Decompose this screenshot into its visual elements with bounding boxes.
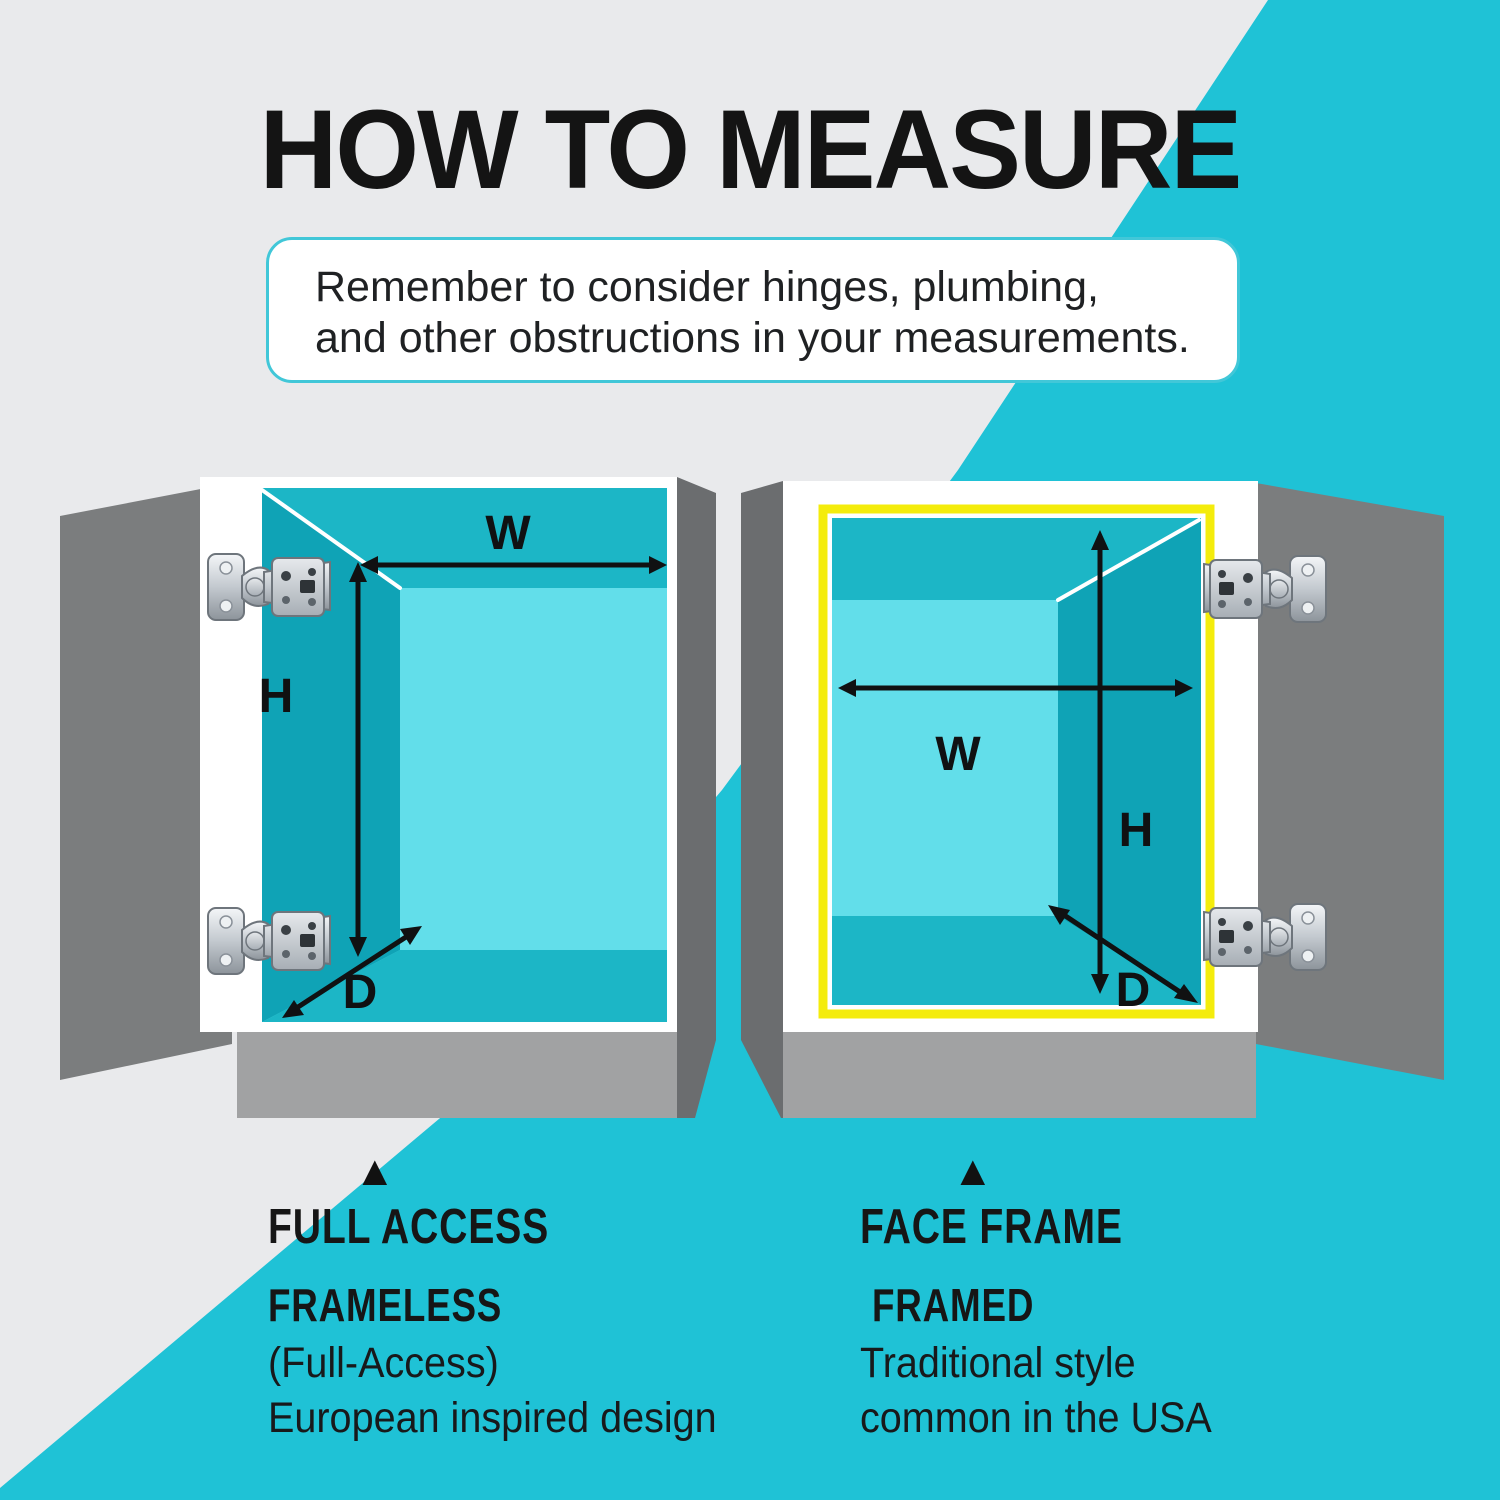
left-height-label: H — [259, 670, 294, 723]
right-caption-detail-1: Traditional style — [860, 1336, 1412, 1391]
note-text-line2: and other obstructions in your measureme… — [315, 313, 1237, 364]
right-caption-style-name: FRAMED — [872, 1280, 1342, 1330]
infographic-page: W H D — [0, 0, 1500, 1500]
left-caption-style-name: FRAMELESS — [268, 1280, 748, 1330]
left-caption-detail-2: European inspired design — [268, 1391, 820, 1446]
right-depth-label: D — [1116, 964, 1151, 1017]
right-cabinet: W H D — [741, 481, 1444, 1118]
right-cabinet-base — [783, 1032, 1256, 1118]
page-title: HOW TO MEASURE — [174, 94, 1326, 206]
left-depth-label: D — [343, 966, 378, 1019]
right-caption-detail-2: common in the USA — [860, 1391, 1412, 1446]
up-triangle-icon: ▲ — [268, 1148, 868, 1194]
right-height-label: H — [1119, 804, 1154, 857]
left-cabinet-base — [237, 1032, 677, 1118]
right-width-label: W — [935, 728, 981, 781]
left-caption-heading: FULL ACCESS — [268, 1202, 748, 1252]
note-box: Remember to consider hinges, plumbing, a… — [266, 237, 1240, 383]
note-text-line1: Remember to consider hinges, plumbing, — [315, 262, 1237, 313]
right-caption-column: ▲ FACE FRAME FRAMED Traditional style co… — [860, 1148, 1460, 1446]
left-width-label: W — [485, 507, 531, 560]
left-caption-detail-1: (Full-Access) — [268, 1336, 820, 1391]
left-caption-column: ▲ FULL ACCESS FRAMELESS (Full-Access) Eu… — [268, 1148, 868, 1446]
right-caption-heading: FACE FRAME — [860, 1202, 1340, 1252]
left-cabinet-side-panel — [677, 477, 716, 1118]
right-cabinet-side-panel — [741, 481, 783, 1118]
left-cabinet: W H D — [60, 477, 716, 1118]
up-triangle-icon: ▲ — [860, 1148, 1460, 1194]
